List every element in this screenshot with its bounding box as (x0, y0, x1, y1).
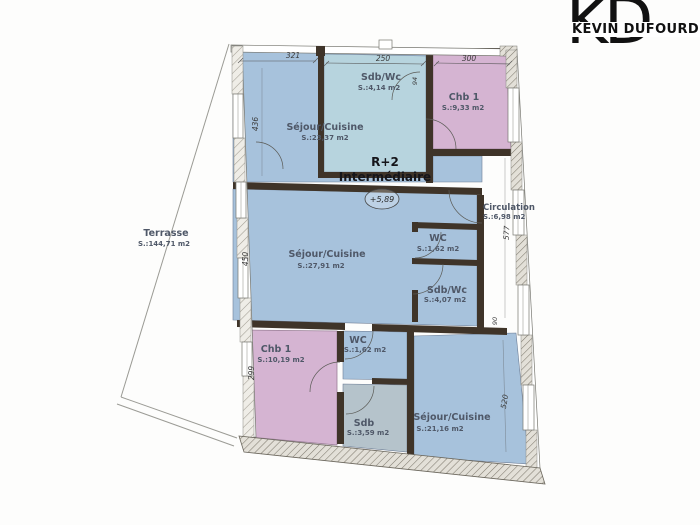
area-sdbwc-top: S.:4,14 m2 (358, 84, 401, 92)
dim-window-width: 94 (411, 77, 419, 85)
wall-segment (412, 290, 418, 322)
logo-wordmark: KEVIN DUFOURD (570, 22, 700, 37)
dim-right-upper: 577 (502, 225, 512, 240)
wall-segment (412, 222, 418, 232)
label-sejour-bottom: Séjour/Cuisine (413, 412, 490, 423)
area-sdb-bottom: S.:3,59 m2 (347, 429, 390, 437)
dim-top-middle: 250 (376, 54, 391, 63)
dim-left-middle: 450 (241, 252, 250, 267)
agency-logo: K D KEVIN DUFOURD (540, 0, 700, 60)
dim-top-right: 300 (462, 54, 477, 63)
dim-top-left: 321 (286, 51, 300, 60)
label-sdbwc-mid: Sdb/Wc (427, 285, 467, 296)
level-title-line1: R+2 (371, 155, 399, 169)
area-chb1-top: S.:9,33 m2 (442, 104, 485, 112)
label-sejour-top: Séjour/Cuisine (286, 122, 363, 133)
dim-door-width: 90 (491, 317, 499, 325)
area-sejour-mid: S.:27,91 m2 (297, 262, 344, 270)
area-sdbwc-mid: S.:4,07 m2 (424, 296, 467, 304)
elevation-value: +5,89 (370, 195, 395, 204)
wall-joint (316, 46, 325, 56)
wall-segment (426, 50, 433, 183)
label-circulation: Circulation (483, 203, 535, 213)
wall-segment (407, 331, 414, 457)
area-circulation: S.:6,98 m2 (483, 213, 526, 221)
area-wc-bottom: S.:1,62 m2 (344, 346, 387, 354)
dim-left-upper: 436 (251, 117, 260, 132)
label-sdb-bottom: Sdb (354, 418, 375, 429)
label-sdbwc-top: Sdb/Wc (361, 72, 401, 83)
label-chb1-bottom: Chb 1 (261, 344, 291, 355)
level-title-line2: Intermédiaire (339, 170, 431, 184)
area-wc-mid: S.:1,62 m2 (417, 245, 460, 253)
top-notch (379, 40, 392, 49)
wall-segment (372, 378, 412, 385)
label-terrasse: Terrasse (143, 228, 188, 239)
label-wc-bottom: WC (349, 335, 366, 346)
room-sejour-bottom (414, 333, 529, 464)
label-sejour-mid: Séjour/Cuisine (288, 249, 365, 260)
room-sdb-bottom (343, 384, 407, 452)
floor-plan-drawing: +5,89 R+2 Intermédiaire Séjour/Cuisine S… (0, 0, 700, 525)
wall-segment (337, 392, 344, 444)
room-chb1-bottom (246, 330, 337, 445)
wall-segment (318, 54, 324, 172)
dim-left-lower: 299 (247, 366, 256, 381)
label-wc-mid: WC (429, 233, 446, 244)
area-terrasse: S.:144,71 m2 (138, 240, 190, 248)
label-chb1-top: Chb 1 (449, 92, 479, 103)
floor-plan-page: +5,89 R+2 Intermédiaire Séjour/Cuisine S… (0, 0, 700, 525)
elevation-marker: +5,89 (365, 189, 399, 209)
room-entry (433, 156, 482, 182)
area-sejour-top: S.:23,37 m2 (301, 134, 348, 142)
area-sejour-bottom: S.:21,16 m2 (416, 425, 463, 433)
wall-segment (426, 149, 513, 156)
area-chb1-bottom: S.:10,19 m2 (257, 356, 304, 364)
